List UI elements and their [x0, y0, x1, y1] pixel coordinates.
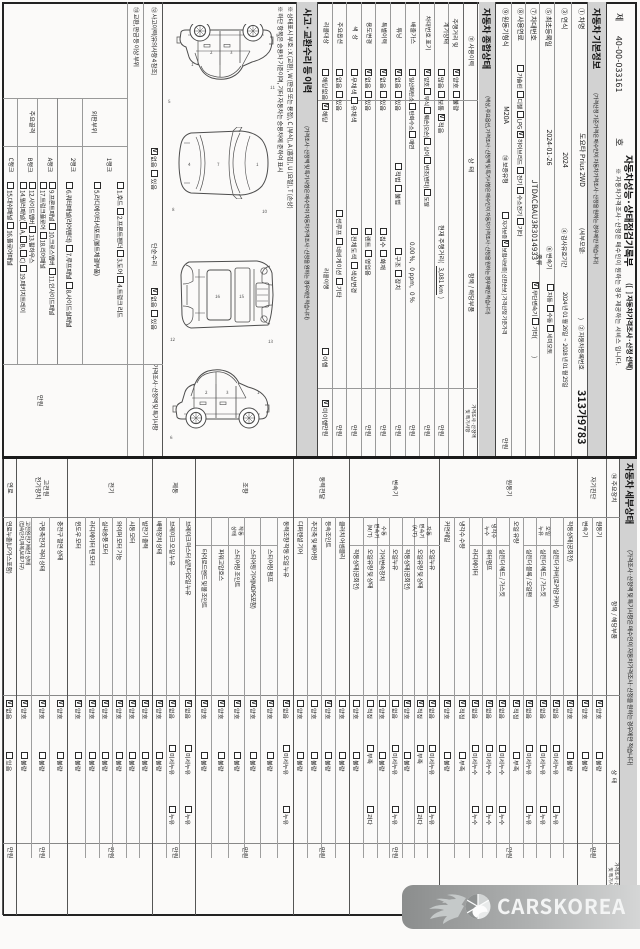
svg-text:CARSKOREA: CARSKOREA: [497, 890, 626, 920]
svg-text:3: 3: [226, 390, 229, 396]
svg-text:1: 1: [257, 390, 260, 396]
svg-text:16: 16: [215, 294, 220, 300]
svg-text:15: 15: [239, 294, 244, 300]
svg-text:1: 1: [256, 162, 259, 168]
svg-text:4: 4: [188, 162, 191, 168]
svg-text:2: 2: [205, 390, 208, 396]
svg-text:7: 7: [217, 162, 220, 168]
